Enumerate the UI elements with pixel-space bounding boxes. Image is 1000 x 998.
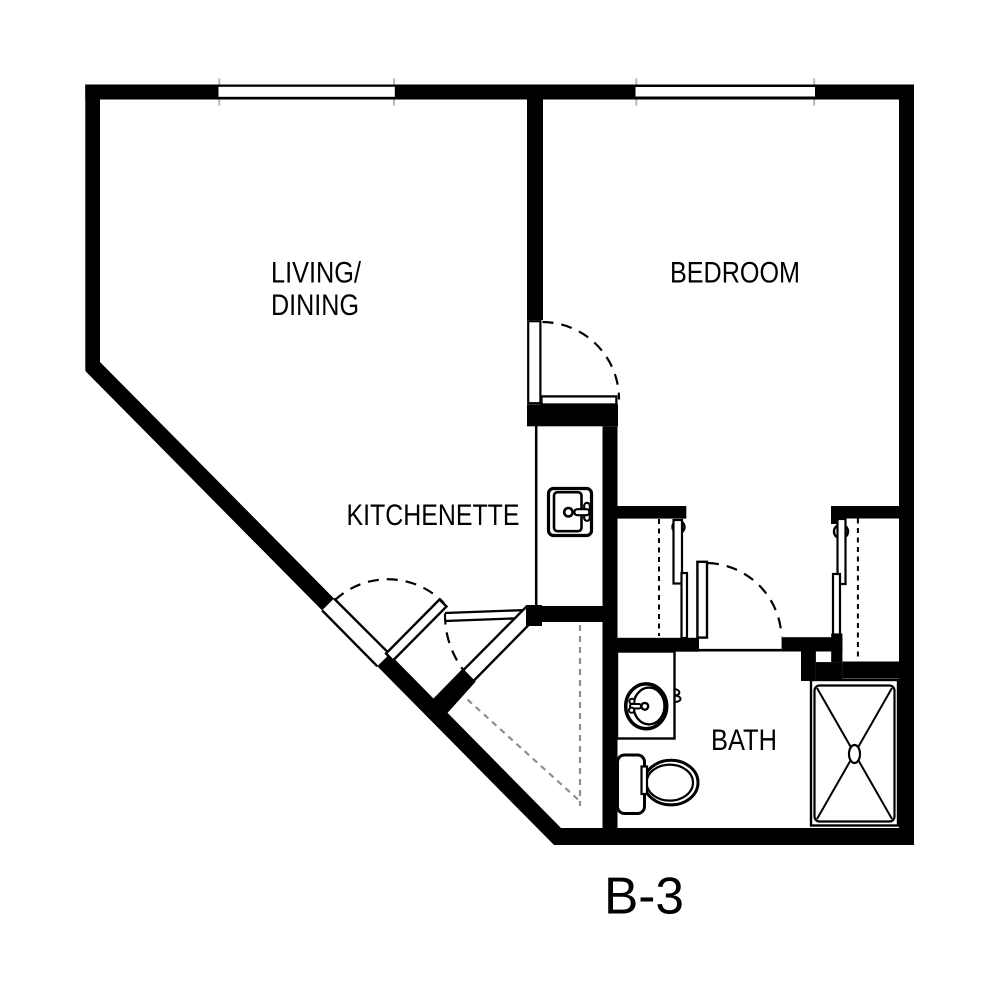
svg-text:KITCHENETTE: KITCHENETTE	[347, 499, 520, 532]
svg-text:B-3: B-3	[604, 868, 684, 926]
svg-text:BATH: BATH	[711, 724, 777, 757]
svg-text:LIVING/: LIVING/	[271, 257, 362, 290]
svg-text:BEDROOM: BEDROOM	[670, 257, 800, 290]
svg-text:DINING: DINING	[271, 289, 359, 322]
